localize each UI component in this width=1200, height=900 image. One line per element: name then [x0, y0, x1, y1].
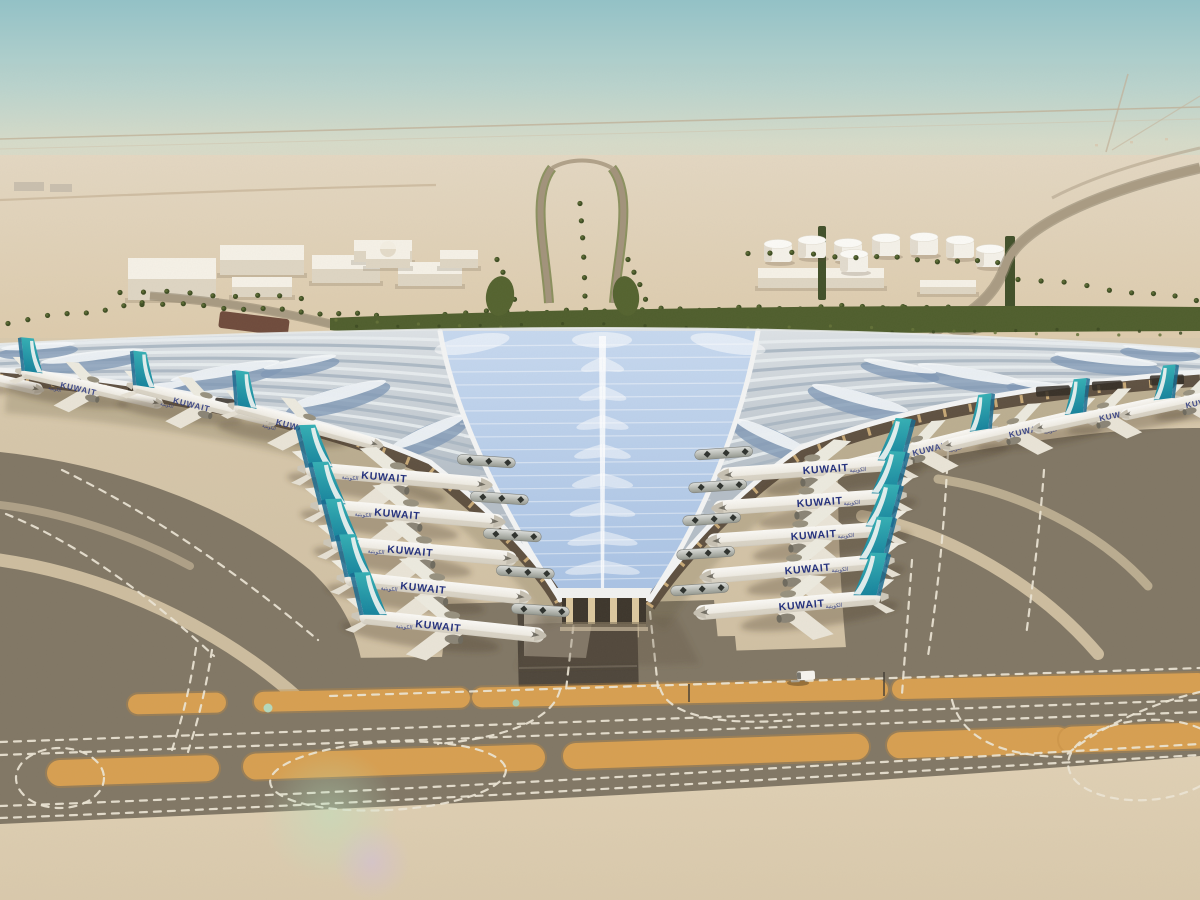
airport-aerial-rendering: KUWAITالكويتيةKUWAITالكويتيةKUWAITالكويت… [0, 0, 1200, 900]
flare-dot [264, 704, 273, 713]
film-grain [0, 140, 1200, 900]
flare-ring [334, 824, 410, 900]
flare-dot [513, 700, 520, 707]
airport-rendering-stage: KUWAITالكويتيةKUWAITالكويتيةKUWAITالكويت… [0, 0, 1200, 900]
